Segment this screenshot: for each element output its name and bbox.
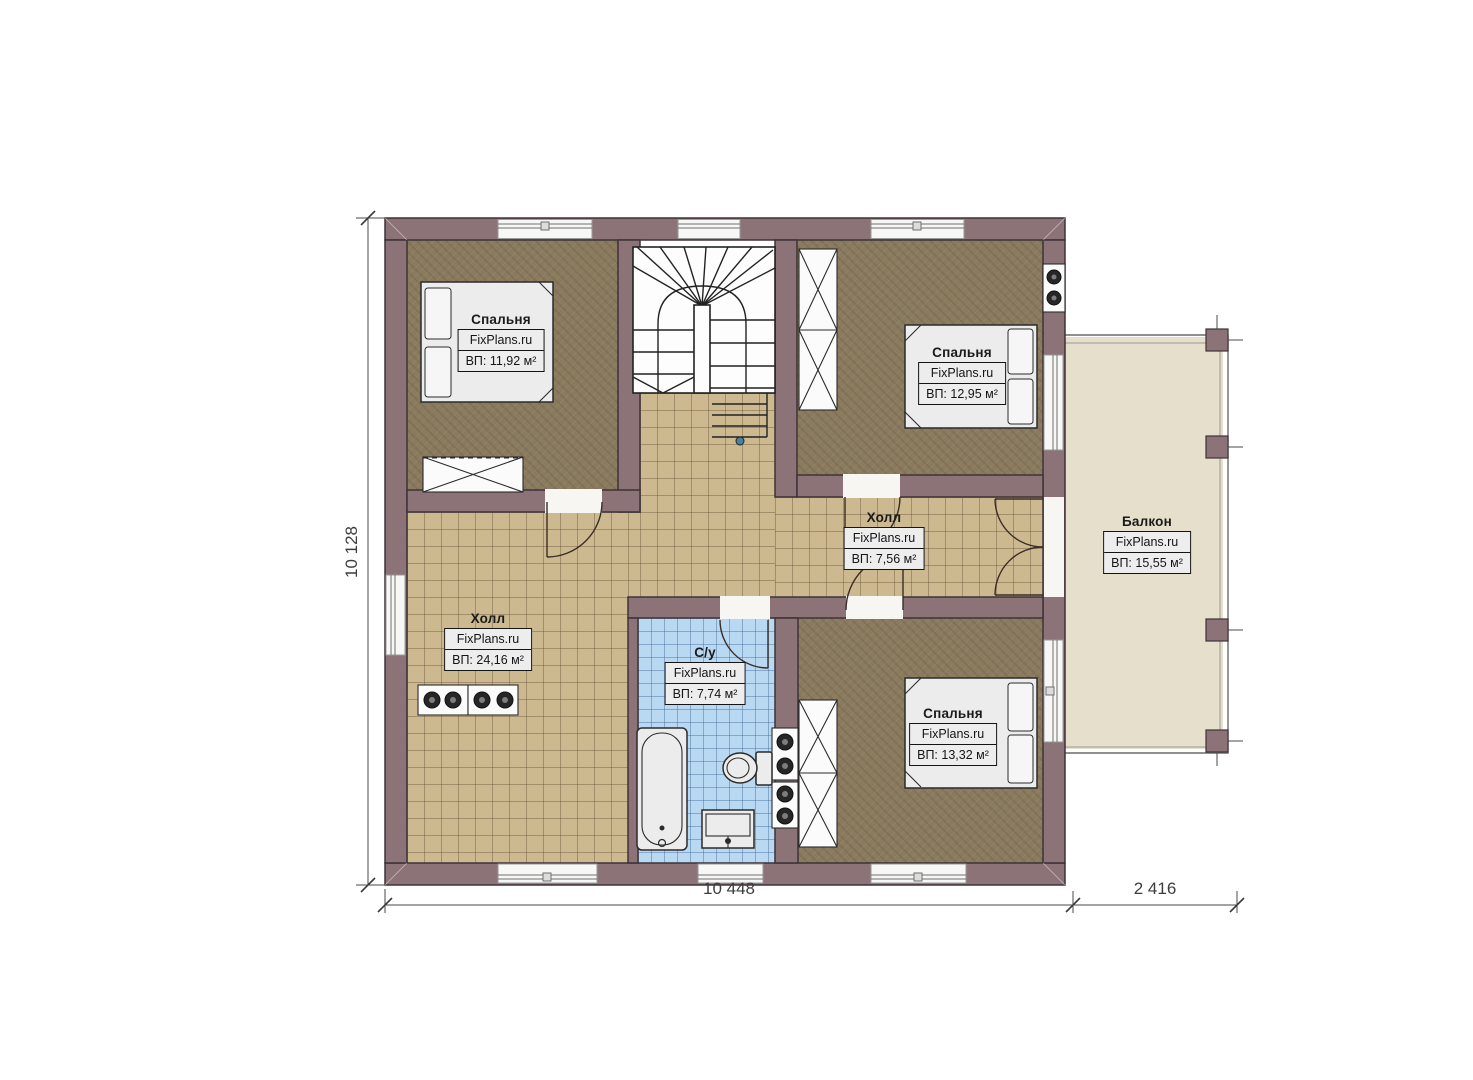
door-balcony-french bbox=[995, 499, 1043, 595]
brand-row: FixPlans.ru bbox=[445, 629, 531, 649]
window-top-3 bbox=[871, 220, 964, 239]
area-row: ВП: 15,55 м² bbox=[1104, 552, 1190, 573]
room-info-box: FixPlans.ru ВП: 7,56 м² bbox=[844, 527, 925, 570]
room-label-balcony: Балкон FixPlans.ru ВП: 15,55 м² bbox=[1103, 514, 1191, 574]
area-row: ВП: 7,56 м² bbox=[845, 548, 924, 569]
room-label-bathroom: С/у FixPlans.ru ВП: 7,74 м² bbox=[665, 645, 746, 705]
dimension-left: 10 128 bbox=[342, 526, 362, 578]
room-info-box: FixPlans.ru ВП: 13,32 м² bbox=[909, 723, 997, 766]
room-name: Спальня bbox=[458, 312, 545, 327]
brand-row: FixPlans.ru bbox=[459, 330, 544, 350]
room-name: Холл bbox=[844, 510, 925, 525]
dimension-bottom-main: 10 448 bbox=[703, 879, 755, 899]
toilet bbox=[723, 752, 772, 785]
vent-hall-left bbox=[418, 685, 518, 715]
brand-row: FixPlans.ru bbox=[666, 663, 745, 683]
room-label-hall-middle: Холл FixPlans.ru ВП: 7,56 м² bbox=[844, 510, 925, 570]
room-name: С/у bbox=[665, 645, 746, 660]
area-row: ВП: 13,32 м² bbox=[910, 744, 996, 765]
dimension-bottom-balcony: 2 416 bbox=[1134, 879, 1177, 899]
room-name: Спальня bbox=[909, 706, 997, 721]
room-label-bedroom-bottom: Спальня FixPlans.ru ВП: 13,32 м² bbox=[909, 706, 997, 766]
room-label-bedroom-top-right: Спальня FixPlans.ru ВП: 12,95 м² bbox=[918, 345, 1006, 405]
wardrobe-bedroom-top-left bbox=[423, 457, 523, 492]
brand-row: FixPlans.ru bbox=[919, 363, 1005, 383]
room-name: Балкон bbox=[1103, 514, 1191, 529]
area-row: ВП: 7,74 м² bbox=[666, 683, 745, 704]
area-row: ВП: 12,95 м² bbox=[919, 383, 1005, 404]
window-bottom-3 bbox=[871, 864, 966, 883]
vent-bathroom-wall bbox=[772, 728, 798, 828]
brand-row: FixPlans.ru bbox=[910, 724, 996, 744]
window-left bbox=[386, 575, 405, 655]
vent-bedroom-top-right bbox=[1043, 264, 1065, 312]
room-info-box: FixPlans.ru ВП: 15,55 м² bbox=[1103, 531, 1191, 574]
room-info-box: FixPlans.ru ВП: 11,92 м² bbox=[458, 329, 545, 372]
bathroom-fixtures bbox=[637, 728, 772, 850]
window-bottom-1 bbox=[498, 864, 597, 883]
floor-plan: Спальня FixPlans.ru ВП: 11,92 м² Спальня… bbox=[0, 0, 1473, 1080]
room-name: Спальня bbox=[918, 345, 1006, 360]
area-row: ВП: 24,16 м² bbox=[445, 649, 531, 670]
bathtub bbox=[637, 728, 687, 850]
room-info-box: FixPlans.ru ВП: 7,74 м² bbox=[665, 662, 746, 705]
room-info-box: FixPlans.ru ВП: 24,16 м² bbox=[444, 628, 532, 671]
wardrobe-bedroom-top-right bbox=[799, 249, 837, 410]
brand-row: FixPlans.ru bbox=[1104, 532, 1190, 552]
window-top-2 bbox=[678, 220, 740, 239]
room-info-box: FixPlans.ru ВП: 12,95 м² bbox=[918, 362, 1006, 405]
room-label-hall-left: Холл FixPlans.ru ВП: 24,16 м² bbox=[444, 611, 532, 671]
window-top-1 bbox=[498, 220, 592, 239]
plan-linework bbox=[0, 0, 1473, 1080]
brand-row: FixPlans.ru bbox=[845, 528, 924, 548]
room-name: Холл bbox=[444, 611, 532, 626]
area-row: ВП: 11,92 м² bbox=[459, 350, 544, 371]
staircase bbox=[633, 247, 775, 445]
sink bbox=[702, 810, 754, 848]
window-right-2 bbox=[1044, 640, 1063, 742]
window-right-1 bbox=[1044, 355, 1063, 450]
room-label-bedroom-top-left: Спальня FixPlans.ru ВП: 11,92 м² bbox=[458, 312, 545, 372]
wardrobe-bedroom-bottom bbox=[799, 700, 837, 847]
